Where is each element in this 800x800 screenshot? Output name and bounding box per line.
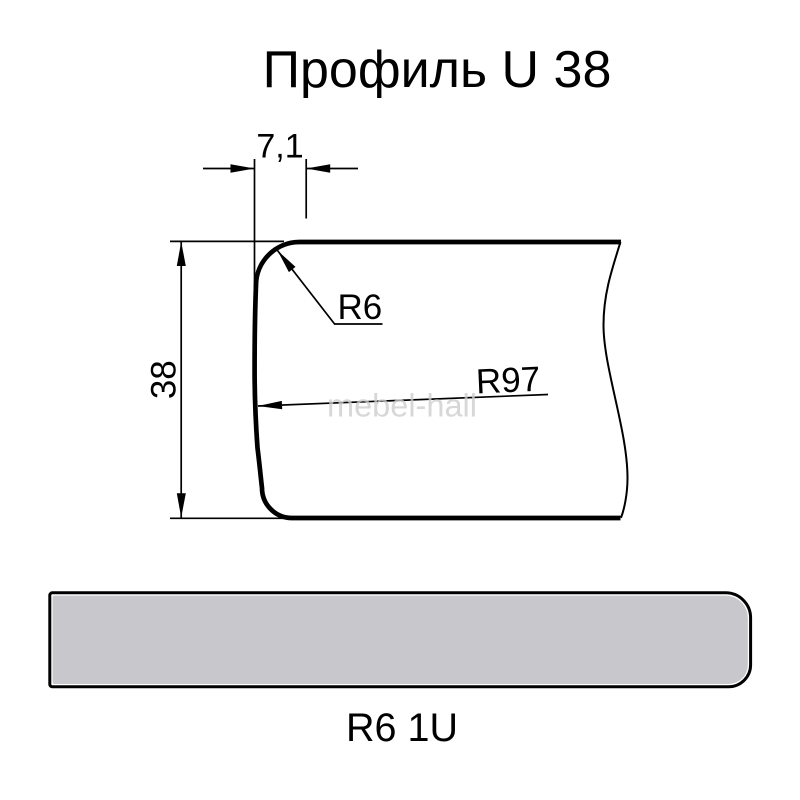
svg-text:7,1: 7,1 xyxy=(256,128,303,166)
svg-text:Профиль U 38: Профиль U 38 xyxy=(263,41,612,99)
svg-text:mebel-hall: mebel-hall xyxy=(327,388,477,424)
svg-text:38: 38 xyxy=(145,360,184,399)
svg-text:R6 1U: R6 1U xyxy=(346,706,458,750)
svg-text:R97: R97 xyxy=(475,360,541,402)
svg-text:R6: R6 xyxy=(338,288,383,327)
